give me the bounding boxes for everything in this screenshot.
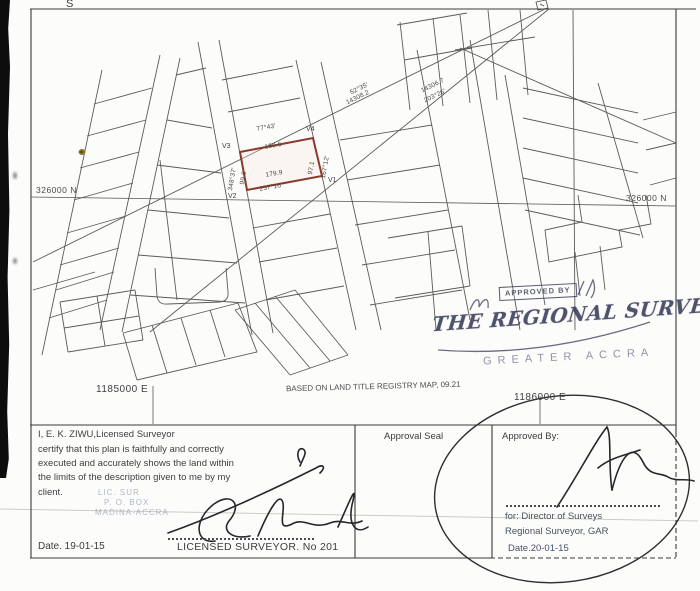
surveyor-address-stamp: P. O. BOX [104,498,149,507]
license-number: LICENSED SURVEYOR. No 201 [177,541,338,553]
survey-plan-page: S 326000 N 326000 N 1185000 E 1186000 E … [0,0,700,591]
olive-mark [79,149,86,155]
grid-label-north-right: 326000 N [626,193,667,203]
surveyor-signature-line [168,538,314,540]
certificate-line: I, E. K. ZIWU,Licensed Surveyor [38,429,175,440]
vertex-v4: V4 [306,126,315,133]
approved-by-label: Approved By: [502,431,559,442]
surveyor-date: Date. 19-01-15 [38,541,105,552]
vertex-v3: V3 [222,143,231,150]
certificate-line: client. [38,487,63,498]
approver-office: Regional Surveyor, GAR [505,526,609,537]
approver-signature [557,427,694,507]
scan-smudge [13,258,17,264]
vertex-v2: V2 [228,193,237,200]
approval-date: Date.20-01-15 [508,543,569,554]
surveyor-address-stamp: LIC. SUR [98,488,140,497]
certificate-line: the limits of the description given to m… [38,472,230,483]
certificate-line: certify that this plan is faithfully and… [38,444,224,455]
grid-label-north-left: 326000 N [36,185,77,195]
scan-smudge [13,172,17,179]
vertex-v1: V1 [328,177,337,184]
approval-seal-label: Approval Seal [384,431,443,442]
corner-mark: S [66,0,73,10]
approver-for-line: for: Director of Surveys [505,511,602,522]
surveyor-address-stamp: MADINA-ACCRA [95,508,169,517]
certificate-line: executed and accurately shows the land w… [38,458,234,469]
approver-signature-line [506,505,660,507]
seal-ellipse [422,379,700,591]
grid-label-east-right: 1186000 E [514,392,566,403]
grid-label-east-left: 1185000 E [96,384,148,395]
